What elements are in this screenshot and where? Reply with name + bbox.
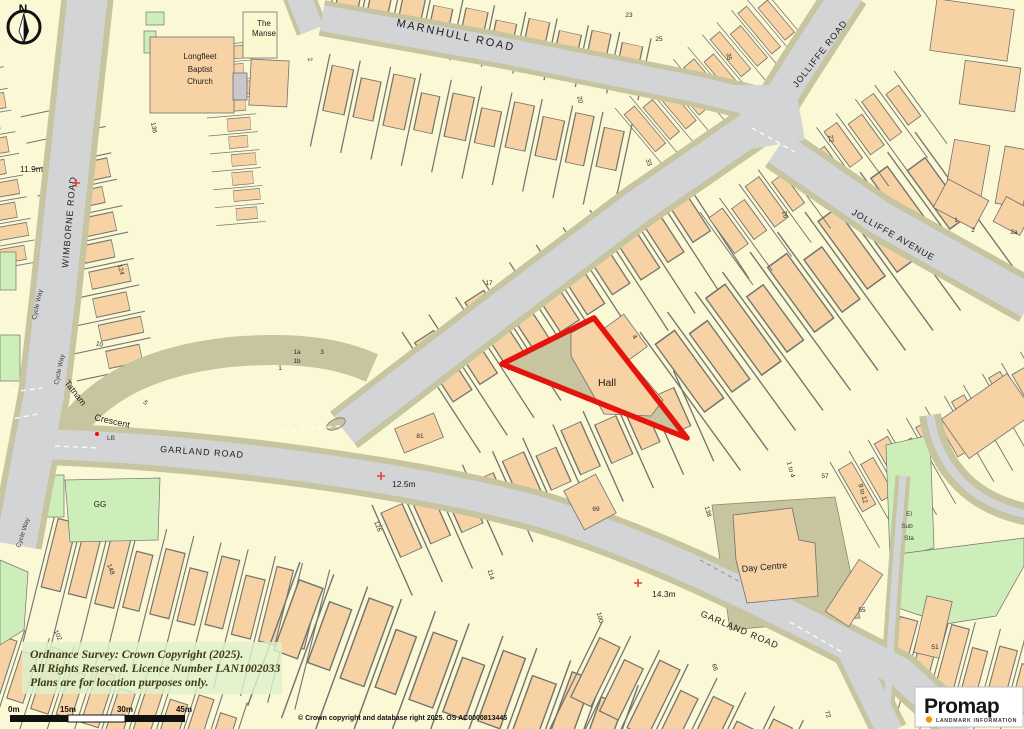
svg-text:Sta: Sta — [904, 535, 914, 542]
copyright-box: Ordnance Survey: Crown Copyright (2025).… — [22, 642, 282, 694]
church-building — [150, 37, 234, 113]
scale-label: 45m — [176, 705, 192, 714]
scale-label: 30m — [117, 705, 133, 714]
north-label: N — [19, 2, 28, 16]
os-attribution: © Crown copyright and database right 202… — [298, 714, 507, 722]
copyright-line: Ordnance Survey: Crown Copyright (2025). — [30, 647, 243, 661]
house-number: 1b — [293, 358, 301, 365]
spot-height: 12.5m — [392, 479, 416, 489]
spot-height: 14.3m — [652, 589, 676, 599]
house-number: 25 — [655, 36, 663, 43]
house-number: 69 — [592, 506, 600, 513]
house-number: 55 — [858, 607, 866, 614]
svg-text:Sub: Sub — [901, 523, 913, 530]
church-label: Longfleet — [184, 52, 218, 61]
hall-label: Hall — [598, 377, 616, 389]
house-number: 2a — [1010, 229, 1018, 236]
scale-label: 15m — [60, 705, 76, 714]
gg-label: GG — [94, 500, 106, 509]
house-number: 17 — [485, 280, 493, 287]
map-screenshot: MARNHULL ROAD JOLLIFFE ROAD JOLLIFFE AVE… — [0, 0, 1024, 729]
house-number: 1 — [278, 365, 282, 372]
copyright-line: Plans are for location purposes only. — [30, 675, 209, 689]
map-canvas: MARNHULL ROAD JOLLIFFE ROAD JOLLIFFE AVE… — [0, 0, 1024, 729]
manse-label: The — [257, 19, 271, 28]
house-number: 2 — [971, 227, 975, 234]
house-number: 3 — [320, 349, 324, 356]
lb-marker — [95, 432, 99, 436]
scale-label: 0m — [8, 705, 20, 714]
house-number: 1 — [954, 217, 958, 224]
house-number: 1a — [293, 349, 301, 356]
house-number: 23 — [625, 12, 633, 19]
svg-text:Manse: Manse — [252, 29, 277, 38]
promap-tagline: LANDMARK INFORMATION — [936, 718, 1017, 724]
house-number: 81 — [416, 433, 424, 440]
spot-height: 11.9m — [20, 164, 43, 174]
lb-label: LB — [107, 435, 115, 442]
house-number: 57 — [821, 473, 829, 480]
svg-text:Baptist: Baptist — [188, 65, 213, 74]
promap-brand: Promap — [924, 695, 999, 718]
promap-logo: Promap LANDMARK INFORMATION — [915, 687, 1023, 727]
svg-text:Church: Church — [187, 77, 213, 86]
copyright-line: All Rights Reserved. Licence Number LAN1… — [29, 661, 280, 675]
promap-orange-dot — [926, 716, 932, 722]
house-number: 51 — [931, 644, 939, 651]
el-sub-sta-label: El — [906, 511, 912, 518]
